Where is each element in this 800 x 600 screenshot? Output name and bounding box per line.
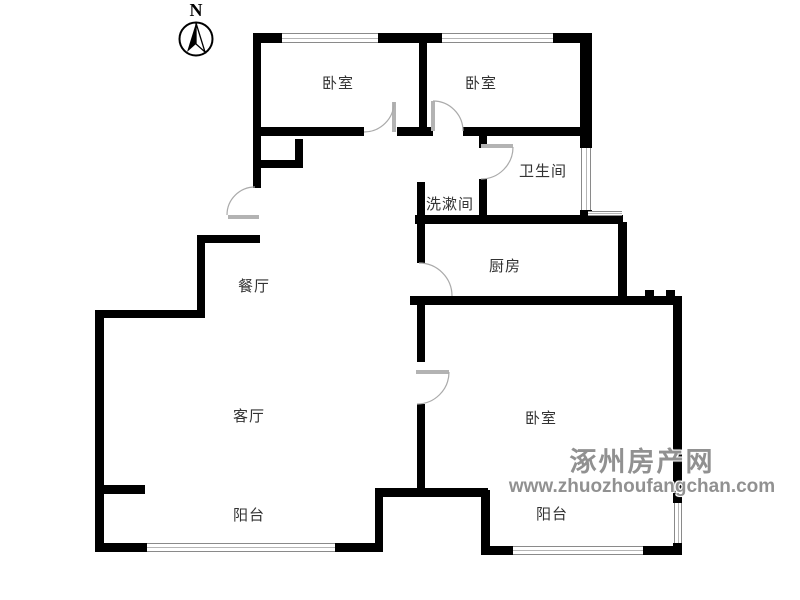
room-label-kitchen: 厨房 bbox=[489, 255, 521, 276]
room-label-balcony-right: 阳台 bbox=[536, 503, 568, 524]
watermark-site-name: 涿州房产网 bbox=[486, 448, 798, 476]
room-label-dining: 餐厅 bbox=[238, 275, 270, 296]
bathroom-door-arc bbox=[481, 147, 513, 179]
watermark-site-url: www.zhuozhoufangchan.com bbox=[486, 477, 798, 497]
bedroom1-door-arc bbox=[364, 102, 394, 132]
bedroom-right-door-arc bbox=[417, 372, 449, 404]
room-label-washroom: 洗漱间 bbox=[426, 193, 474, 214]
floor-plan: N bbox=[0, 0, 800, 600]
room-label-living: 客厅 bbox=[233, 405, 265, 426]
kitchen-door-arc bbox=[419, 263, 452, 296]
room-label-balcony-left: 阳台 bbox=[233, 504, 265, 525]
room-label-bedroom-top-right: 卧室 bbox=[465, 72, 497, 93]
room-label-bathroom: 卫生间 bbox=[519, 160, 567, 181]
watermark: 涿州房产网 www.zhuozhoufangchan.com bbox=[486, 448, 798, 497]
entry-door-arc bbox=[227, 187, 255, 215]
door-arcs bbox=[0, 0, 800, 600]
bedroom2-door-arc bbox=[433, 101, 463, 131]
room-label-bedroom-top-left: 卧室 bbox=[322, 72, 354, 93]
room-label-bedroom-right: 卧室 bbox=[525, 407, 557, 428]
